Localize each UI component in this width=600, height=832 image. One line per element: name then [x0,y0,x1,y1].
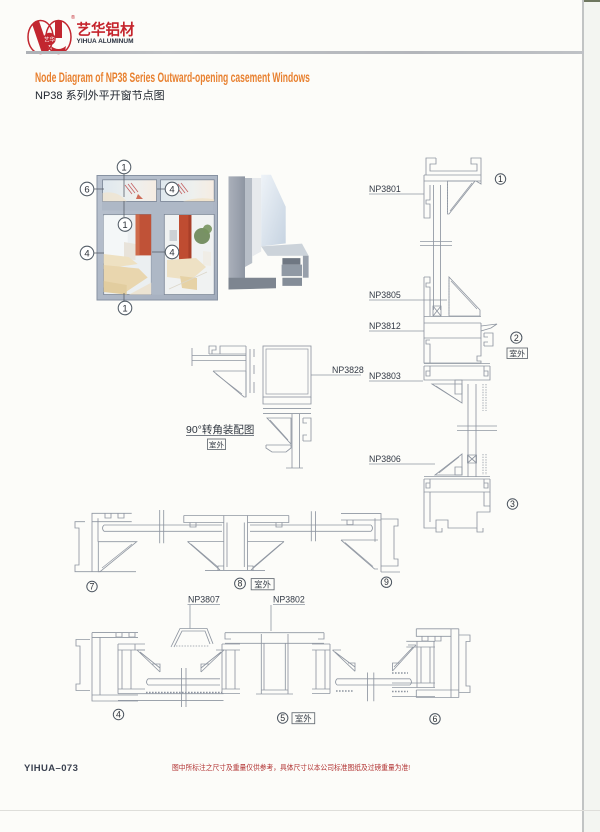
svg-text:4: 4 [84,248,89,259]
svg-text:室外: 室外 [509,348,525,358]
svg-text:1: 1 [121,162,126,173]
svg-text:6: 6 [84,184,89,195]
svg-text:1: 1 [122,220,127,231]
svg-text:室外: 室外 [254,579,271,589]
svg-text:4: 4 [169,184,174,195]
svg-text:NP3802: NP3802 [273,595,305,605]
svg-text:4: 4 [169,247,174,258]
svg-text:6: 6 [433,714,438,724]
svg-text:NP3805: NP3805 [369,290,401,300]
svg-text:室外: 室外 [209,439,225,449]
svg-text:NP3801: NP3801 [369,184,401,194]
svg-text:90°转角装配图: 90°转角装配图 [186,423,254,436]
svg-text:NP3828: NP3828 [332,365,364,375]
svg-text:4: 4 [116,710,121,720]
svg-text:NP3807: NP3807 [188,595,220,605]
svg-text:2: 2 [514,333,519,343]
svg-text:3: 3 [510,499,515,509]
svg-text:9: 9 [384,577,389,587]
svg-text:YIHUA ALUMINUM: YIHUA ALUMINUM [77,38,134,45]
svg-text:艺华铝材: 艺华铝材 [77,21,135,39]
svg-text:室外: 室外 [295,713,312,723]
svg-text:®: ® [71,14,75,21]
svg-text:1: 1 [122,303,127,314]
svg-text:5: 5 [280,713,285,723]
svg-text:艺华: 艺华 [44,35,56,43]
svg-text:8: 8 [238,579,243,589]
svg-text:1: 1 [498,174,503,184]
